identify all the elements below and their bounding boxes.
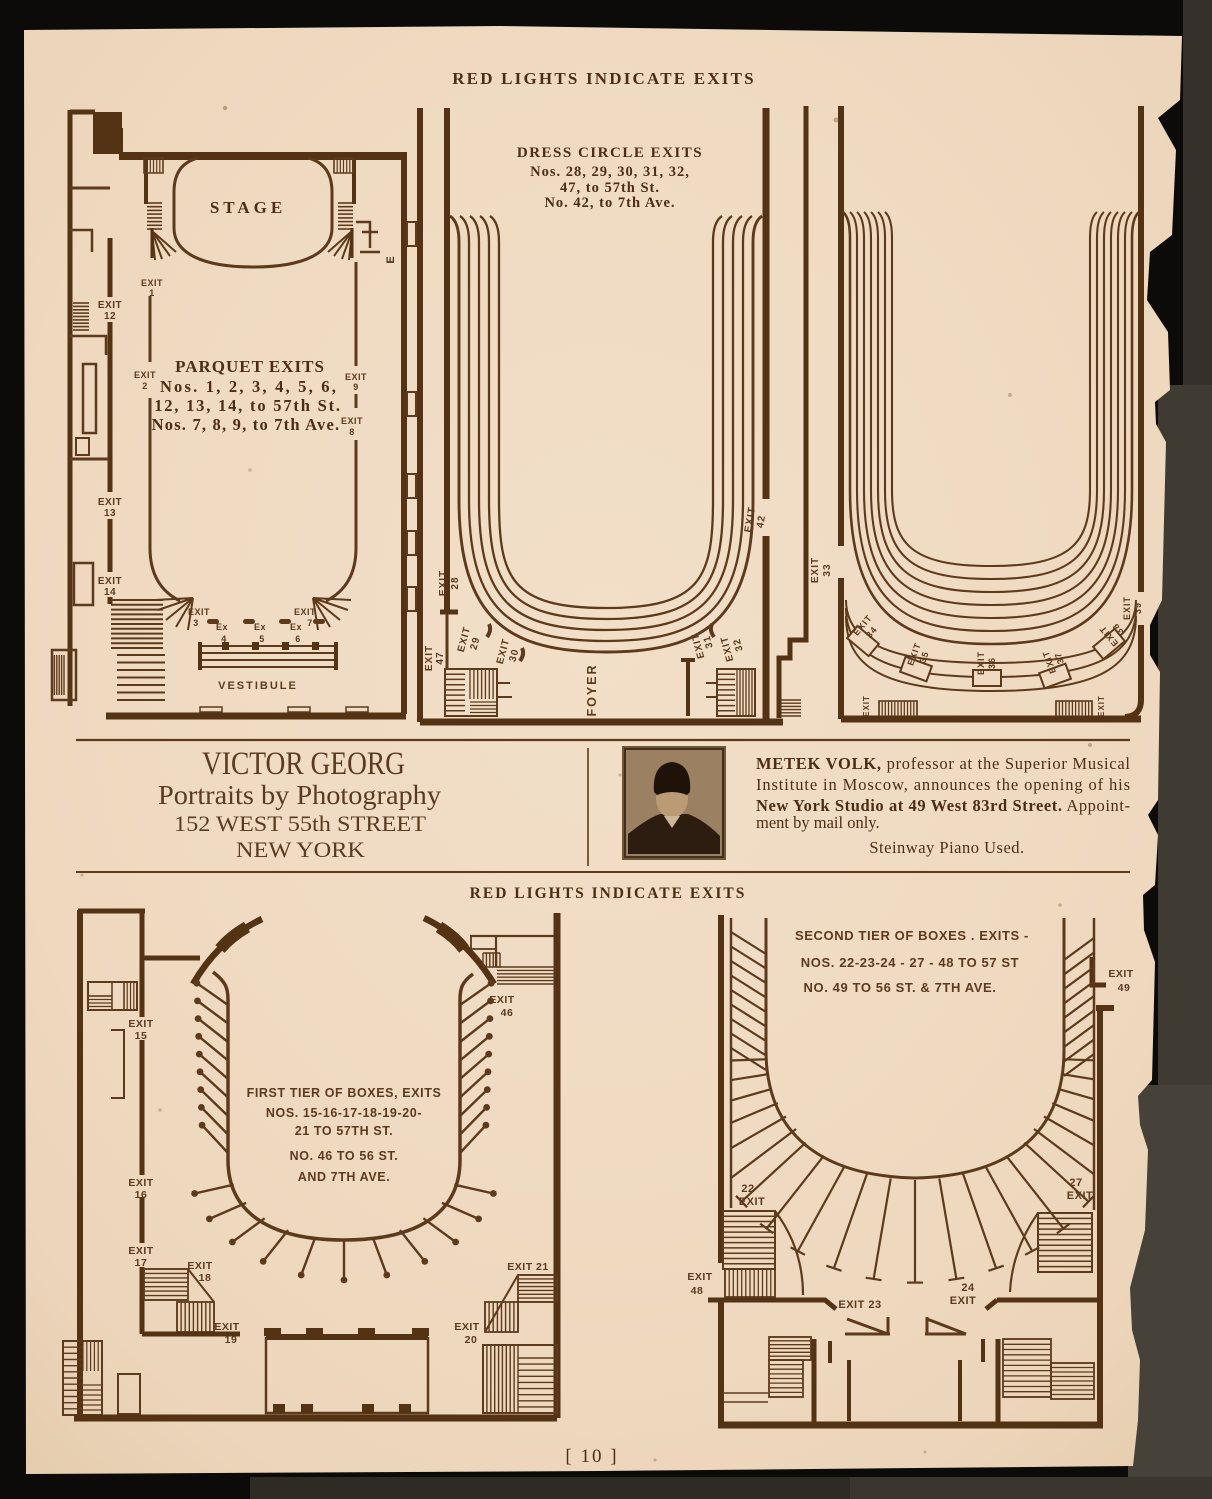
svg-text:EXIT: EXIT xyxy=(687,1271,712,1283)
svg-text:EXIT: EXIT xyxy=(98,576,122,587)
svg-text:PARQUET EXITS: PARQUET EXITS xyxy=(175,357,325,376)
svg-text:7: 7 xyxy=(307,618,313,628)
svg-text:24: 24 xyxy=(961,1282,975,1294)
svg-text:NOS. 15-16-17-18-19-20-: NOS. 15-16-17-18-19-20- xyxy=(266,1106,422,1120)
svg-text:6: 6 xyxy=(295,634,301,644)
svg-text:15: 15 xyxy=(135,1030,148,1042)
svg-text:[ 10 ]: [ 10 ] xyxy=(565,1446,618,1467)
svg-text:EXIT: EXIT xyxy=(188,607,210,617)
svg-text:EXIT: EXIT xyxy=(345,372,367,382)
svg-text:27: 27 xyxy=(1069,1177,1082,1189)
svg-text:12, 13, 14, to 57th St.: 12, 13, 14, to 57th St. xyxy=(154,396,342,415)
svg-text:Nos. 1, 2, 3, 4, 5, 6,: Nos. 1, 2, 3, 4, 5, 6, xyxy=(160,377,338,396)
svg-text:28: 28 xyxy=(450,576,461,589)
svg-text:ment by mail only.: ment by mail only. xyxy=(756,813,880,832)
svg-text:47, to 57th St.: 47, to 57th St. xyxy=(560,180,660,196)
svg-text:RED LIGHTS INDICATE EXITS: RED LIGHTS INDICATE EXITS xyxy=(470,885,747,902)
svg-text:NOS. 22-23-24 - 27 - 48 TO 57: NOS. 22-23-24 - 27 - 48 TO 57 ST xyxy=(801,955,1019,970)
svg-text:EXIT: EXIT xyxy=(187,1260,212,1272)
svg-text:47: 47 xyxy=(435,651,446,664)
svg-text:46: 46 xyxy=(501,1007,514,1019)
svg-text:EXIT: EXIT xyxy=(1108,968,1133,980)
svg-text:EXIT 21: EXIT 21 xyxy=(507,1261,548,1273)
svg-text:Portraits by Photography: Portraits by Photography xyxy=(158,780,442,810)
svg-text:AND 7TH AVE.: AND 7TH AVE. xyxy=(298,1170,391,1184)
svg-text:16: 16 xyxy=(135,1189,148,1201)
svg-text:VICTOR GEORG: VICTOR GEORG xyxy=(202,746,405,782)
svg-text:EXIT: EXIT xyxy=(141,278,163,288)
svg-text:EXIT 23: EXIT 23 xyxy=(838,1299,881,1311)
svg-text:EXIT: EXIT xyxy=(98,497,122,508)
svg-text:METEK VOLK, professor at the S: METEK VOLK, professor at the Superior Mu… xyxy=(756,754,1130,773)
svg-text:EXIT: EXIT xyxy=(294,607,316,617)
svg-text:EXIT: EXIT xyxy=(438,570,449,596)
svg-text:36: 36 xyxy=(987,657,997,669)
svg-text:FOYER: FOYER xyxy=(585,663,599,716)
svg-text:Ex: Ex xyxy=(254,622,266,632)
svg-text:VESTIBULE: VESTIBULE xyxy=(218,680,298,692)
svg-text:E: E xyxy=(385,256,397,263)
svg-text:42: 42 xyxy=(755,514,768,529)
svg-text:Institute in Moscow, announces: Institute in Moscow, announces the openi… xyxy=(756,775,1130,794)
svg-text:17: 17 xyxy=(135,1257,148,1269)
svg-text:EXIT: EXIT xyxy=(810,557,821,583)
svg-text:Steinway Piano Used.: Steinway Piano Used. xyxy=(869,838,1024,857)
svg-text:152 WEST 55th STREET: 152 WEST 55th STREET xyxy=(174,811,427,836)
svg-text:EXIT: EXIT xyxy=(214,1321,239,1333)
svg-text:14: 14 xyxy=(104,587,116,598)
svg-text:EXIT: EXIT xyxy=(1067,1190,1093,1202)
svg-text:21 TO 57TH ST.: 21 TO 57TH ST. xyxy=(295,1124,393,1138)
svg-text:13: 13 xyxy=(104,508,116,519)
svg-text:8: 8 xyxy=(349,427,355,437)
svg-text:EXIT: EXIT xyxy=(976,651,986,675)
svg-text:Ex: Ex xyxy=(290,622,302,632)
svg-text:EXIT: EXIT xyxy=(134,370,156,380)
svg-text:9: 9 xyxy=(353,382,359,392)
svg-text:EXIT: EXIT xyxy=(128,1018,153,1030)
svg-text:EXIT: EXIT xyxy=(128,1177,153,1189)
svg-text:RED LIGHTS INDICATE EXITS: RED LIGHTS INDICATE EXITS xyxy=(452,69,756,88)
svg-text:3: 3 xyxy=(193,618,199,628)
svg-text:Nos. 7, 8, 9, to 7th Ave.: Nos. 7, 8, 9, to 7th Ave. xyxy=(152,415,341,434)
svg-text:EXIT: EXIT xyxy=(739,1196,765,1208)
svg-text:EXIT: EXIT xyxy=(454,1321,479,1333)
svg-text:EXIT: EXIT xyxy=(98,300,122,311)
svg-text:EXIT: EXIT xyxy=(489,994,514,1006)
svg-text:STAGE: STAGE xyxy=(210,198,286,217)
svg-text:5: 5 xyxy=(259,634,265,644)
svg-text:EXIT: EXIT xyxy=(862,695,871,717)
svg-text:NEW YORK: NEW YORK xyxy=(236,837,365,862)
svg-text:NO. 46 TO 56 ST.: NO. 46 TO 56 ST. xyxy=(290,1149,399,1163)
svg-text:EXIT: EXIT xyxy=(128,1245,153,1257)
svg-text:33: 33 xyxy=(822,563,833,576)
svg-text:48: 48 xyxy=(691,1285,704,1297)
svg-text:NO. 49 TO 56 ST. & 7TH AVE.: NO. 49 TO 56 ST. & 7TH AVE. xyxy=(804,980,997,995)
svg-text:EXIT: EXIT xyxy=(950,1295,976,1307)
svg-text:1: 1 xyxy=(149,288,155,298)
svg-text:18: 18 xyxy=(199,1272,212,1284)
svg-text:EXIT: EXIT xyxy=(341,416,363,426)
svg-text:DRESS CIRCLE EXITS: DRESS CIRCLE EXITS xyxy=(517,145,703,161)
svg-text:EXIT: EXIT xyxy=(1097,695,1106,717)
svg-text:FIRST TIER OF BOXES, EXITS: FIRST TIER OF BOXES, EXITS xyxy=(247,1086,442,1100)
svg-text:12: 12 xyxy=(104,311,116,322)
svg-text:39: 39 xyxy=(1133,602,1143,614)
svg-text:EXIT: EXIT xyxy=(1122,596,1132,620)
svg-text:Nos. 28, 29, 30, 31, 32,: Nos. 28, 29, 30, 31, 32, xyxy=(530,164,690,180)
svg-text:No. 42, to 7th Ave.: No. 42, to 7th Ave. xyxy=(544,195,675,211)
svg-text:SECOND TIER OF BOXES . EXIT: SECOND TIER OF BOXES . EXITS - xyxy=(795,928,1029,943)
svg-text:2: 2 xyxy=(142,381,148,391)
svg-text:20: 20 xyxy=(465,1334,478,1346)
svg-text:49: 49 xyxy=(1118,982,1131,994)
svg-text:22: 22 xyxy=(741,1183,754,1195)
svg-text:EXIT: EXIT xyxy=(424,645,435,671)
